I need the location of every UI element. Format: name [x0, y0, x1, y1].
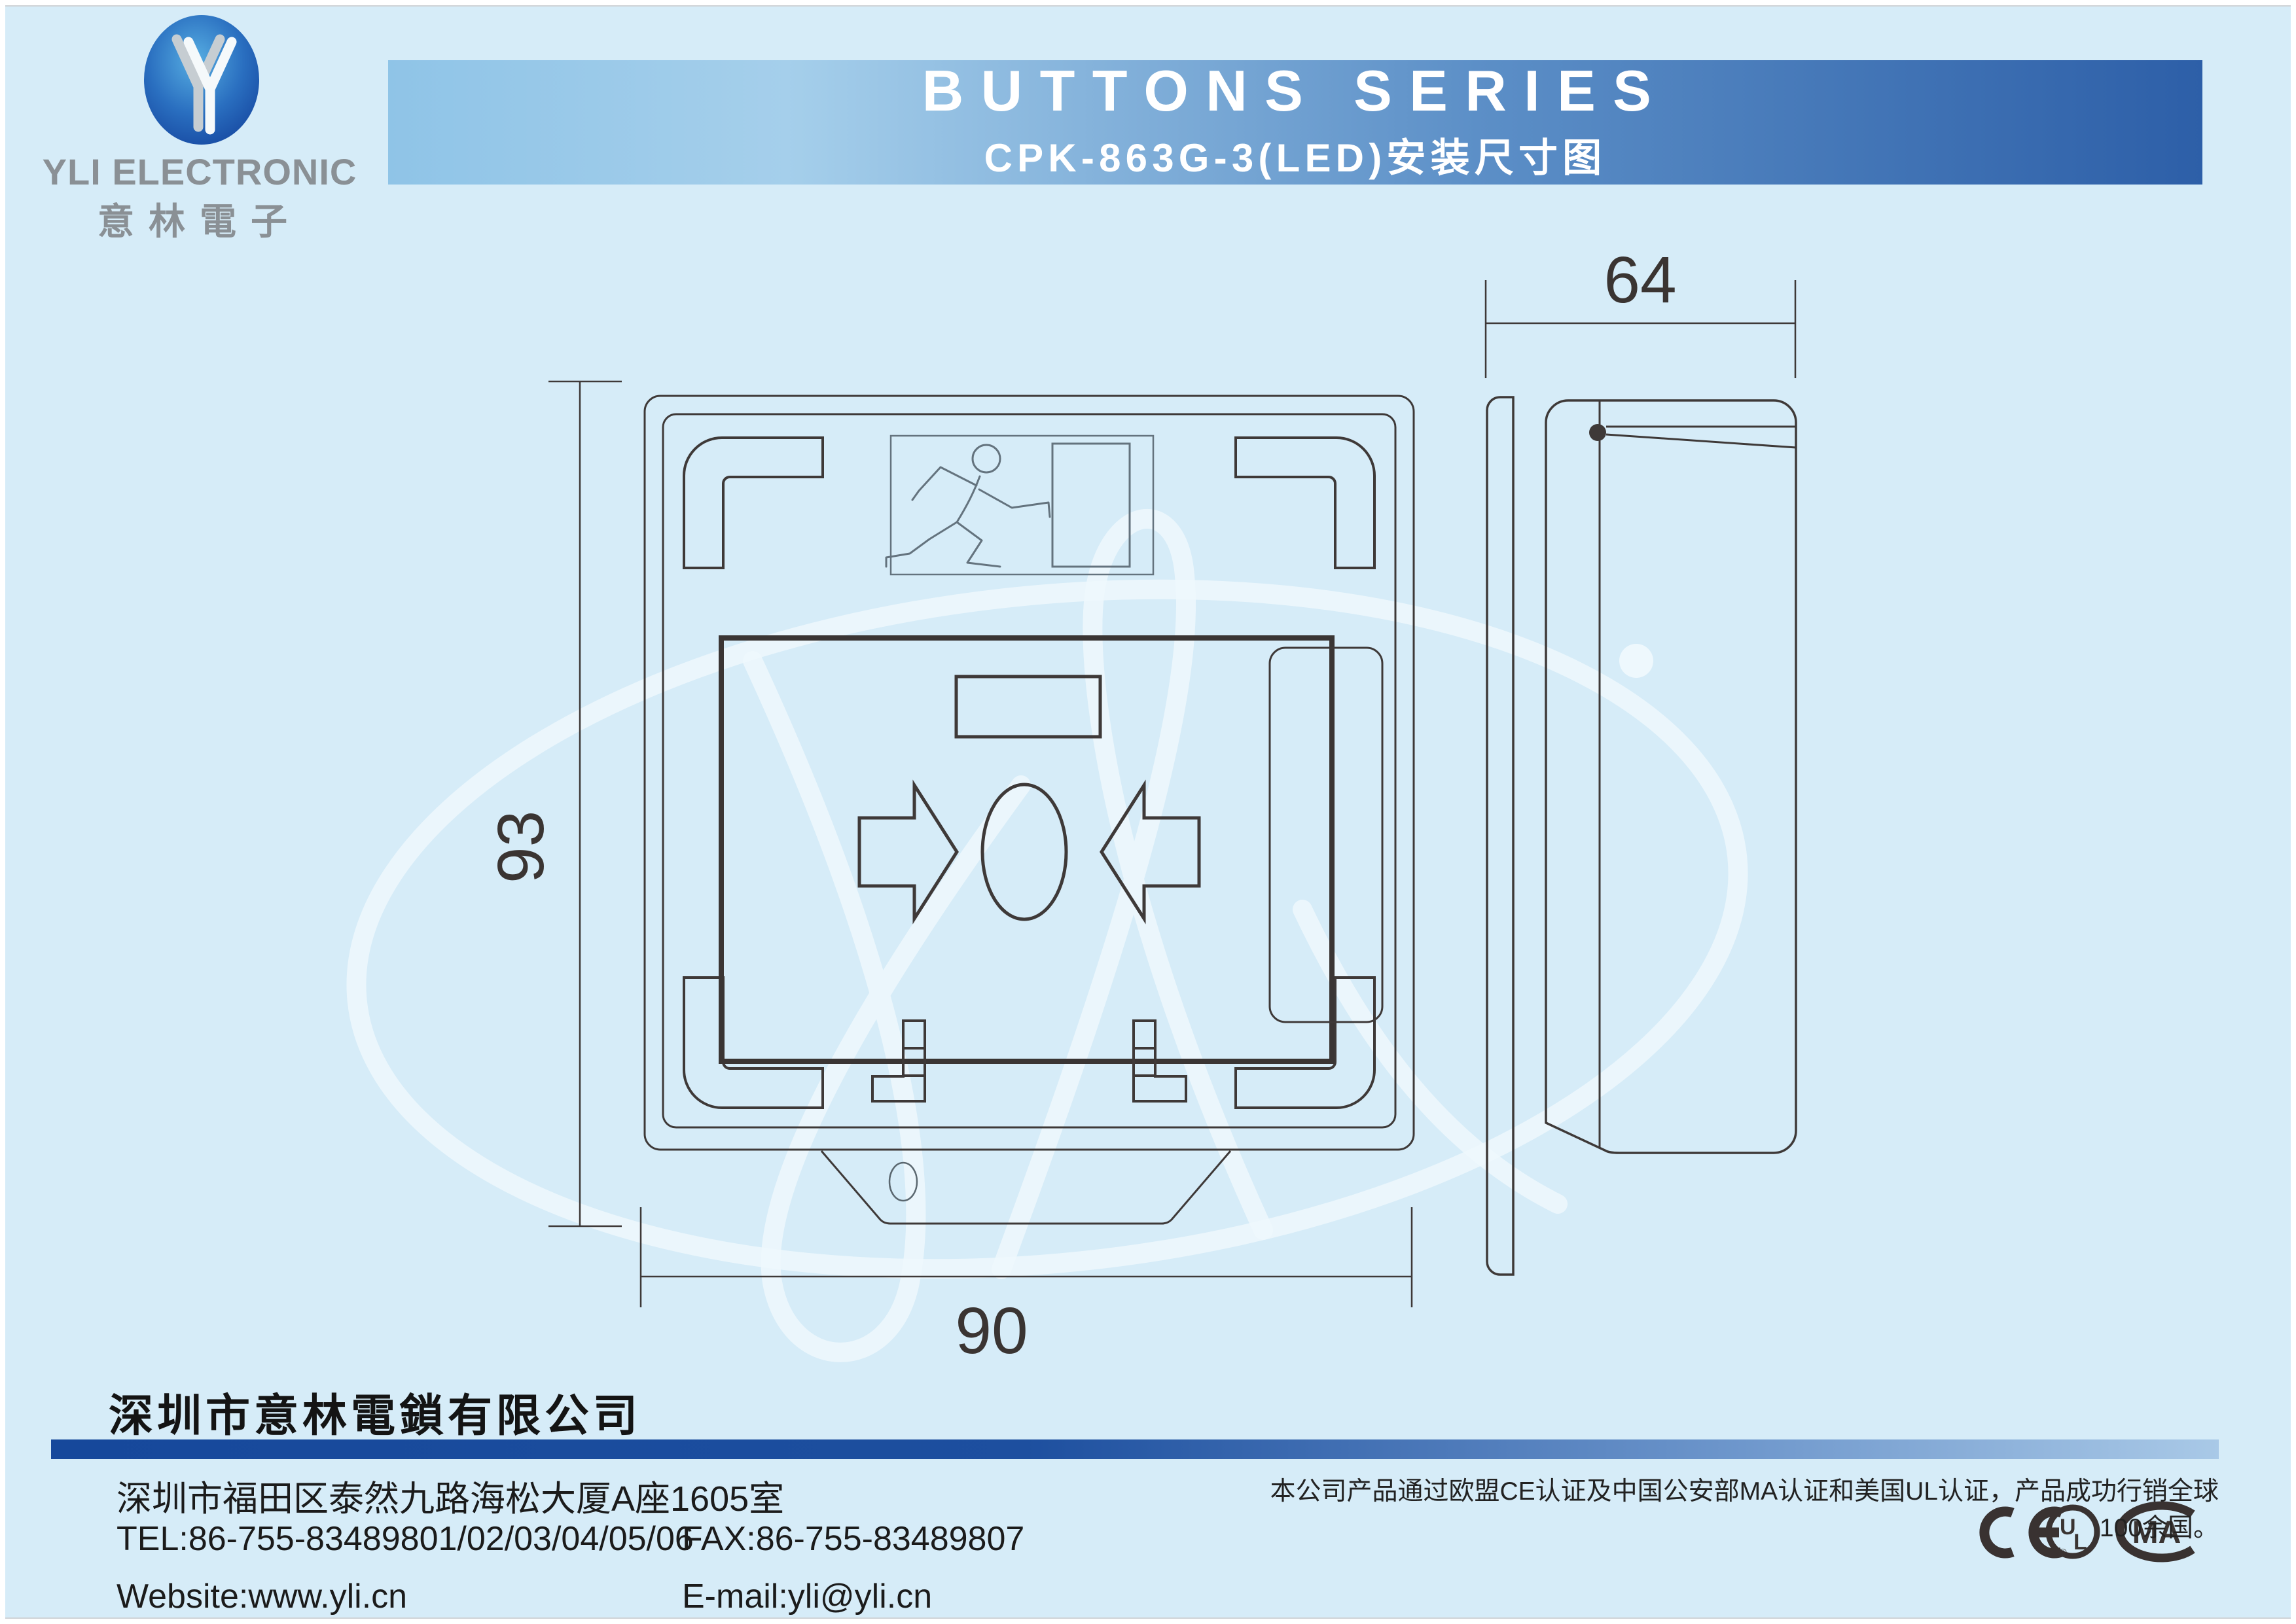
footer-company-name: 深圳市意林電鎖有限公司 [109, 1379, 641, 1444]
bracket-top-left [684, 438, 823, 568]
dim-93: 93 [484, 381, 622, 1226]
page-root: { "page": { "background": "#d6ecf8", "li… [0, 0, 2296, 1624]
button-module-frame [721, 638, 1332, 1061]
button-circle [982, 785, 1066, 919]
logo-oval-icon [36, 8, 363, 152]
dim-93-value: 93 [484, 811, 558, 883]
seam-line-lower [1606, 434, 1796, 448]
series-title: BUTTONS SERIES [922, 62, 1669, 120]
dim-64-value: 64 [1604, 243, 1676, 317]
logo-company-cn: 意林電子 [36, 192, 363, 245]
footer-cert-note: 本公司产品通过欧盟CE认证及中国公安部MA认证和美国UL认证，产品成功行销全球1… [1237, 1471, 2219, 1544]
running-man-icon [886, 445, 1050, 567]
body-profile [1546, 400, 1796, 1153]
yli-watermark [322, 519, 1772, 1352]
page-margin-left [0, 0, 5, 1624]
label-window [956, 677, 1100, 737]
page-margin-right [2291, 0, 2296, 1624]
bracket-top-right [1236, 438, 1374, 568]
logo-company-en: YLI ELECTRONIC [36, 150, 363, 193]
footer-website: Website:www.yli.cn [117, 1577, 407, 1616]
side-view [1487, 397, 1796, 1275]
dim-64: 64 [1486, 243, 1795, 378]
bracket-bottom-left [684, 978, 823, 1108]
front-outer-frame [645, 396, 1414, 1150]
footer-email: E-mail:yli@yli.cn [682, 1577, 932, 1616]
pivot-dot [1589, 424, 1606, 441]
ul-registered-symbol: ® [2059, 1547, 2067, 1559]
front-view [645, 396, 1414, 1224]
title-banner: BUTTONS SERIES CPK-863G-3(LED)安装尺寸图 [388, 60, 2202, 185]
footer-address: 深圳市福田区泰然九路海松大厦A座1605室 [117, 1470, 784, 1521]
company-logo: YLI ELECTRONIC 意林電子 [36, 8, 363, 230]
footer-fax: FAX:86-755-83489807 [682, 1519, 1024, 1559]
page-margin-top [0, 0, 2296, 7]
page-margin-bottom [0, 1617, 2296, 1624]
dim-90-value: 90 [955, 1294, 1028, 1368]
front-inner-frame [663, 414, 1395, 1127]
model-subtitle: CPK-863G-3(LED)安装尺寸图 [984, 126, 1607, 183]
footer-divider-bar [51, 1439, 2219, 1459]
footer-tel: TEL:86-755-83489801/02/03/04/05/06 [117, 1519, 694, 1559]
